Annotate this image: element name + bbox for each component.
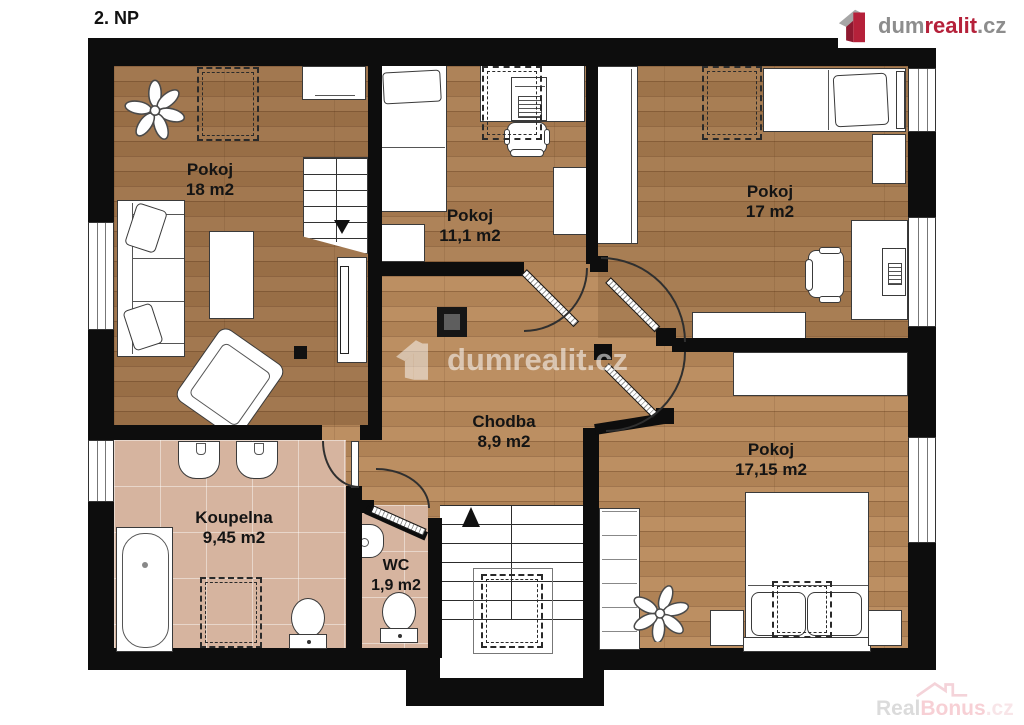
logo-text-dum: dum [878,13,924,38]
realbonus-roof-icon [914,680,970,698]
room-label-pokoj111: Pokoj 11,1 m2 [405,206,535,246]
shelf [733,352,908,396]
logo-text-realit: realit [924,13,977,38]
bathtub-drain [142,562,148,568]
room-name: Koupelna [169,508,299,528]
wall [672,338,908,352]
dumrealit-building-icon [838,6,874,46]
sink [236,441,278,479]
chair-back [510,149,544,157]
flush-button [307,640,311,644]
room-label-pokoj18: Pokoj 18 m2 [145,160,275,200]
window-pane-line [927,69,928,131]
nightstand [872,134,906,184]
window-pane-line [927,438,928,542]
realbonus-text-bonus: Bonus [920,697,985,720]
room-label-wc: WC 1,9 m2 [331,556,461,596]
floor-plan-page: Pokoj 18 m2 Pokoj 11,1 m2 Pokoj 17 m2 Ch… [0,0,1024,725]
blanket-line [828,70,829,130]
room-area: 17 m2 [705,202,835,222]
window-pane-line [105,223,106,329]
faucet [254,443,264,455]
sofa-seat-line [132,301,184,302]
toilet-tank [380,628,418,643]
headboard [743,637,871,652]
room-area: 11,1 m2 [405,226,535,246]
dumrealit-logo: dumrealit.cz [838,4,1018,48]
toilet [382,592,416,632]
wall [586,66,598,264]
wall [88,38,936,66]
headboard [896,71,905,129]
toilet-tank [289,634,327,649]
stairs-up-arrow-icon [462,507,480,527]
nightstand [868,610,902,646]
window [908,437,936,543]
realbonus-text-cz: .cz [986,697,1014,720]
sofa-seat-line [132,258,184,259]
bathtub-basin [122,533,169,648]
room-area: 8,9 m2 [439,432,569,452]
pillow [382,70,442,105]
chair-armrest [819,247,841,254]
logo-text: dumrealit.cz [878,13,1006,39]
room-name: Pokoj [405,206,535,226]
bed-single [377,64,447,212]
pillow [833,73,890,128]
wall [382,262,524,276]
stove-flue [294,346,307,359]
wall [583,428,599,678]
roof-window [482,66,542,140]
wall [88,425,322,440]
chimney-flue [444,314,460,330]
roof-window [197,67,259,141]
room-label-pokoj17: Pokoj 17 m2 [705,182,835,222]
wardrobe [594,66,638,244]
computer [882,248,906,296]
wall [368,66,382,425]
window [88,222,114,330]
room-label-pokoj1715: Pokoj 17,15 m2 [706,440,836,480]
nightstand [710,610,744,646]
room-name: Pokoj [706,440,836,460]
roof-window [481,574,543,648]
room-name: Pokoj [145,160,275,180]
roof-window [772,581,832,638]
room-name: WC [331,556,461,576]
plant-icon [122,78,188,140]
bed-single [763,68,906,132]
logo-text-cz: .cz [977,13,1006,38]
chimney [437,307,467,337]
wardrobe [302,66,366,100]
window-pane-line [97,441,98,501]
window-pane-line [97,223,98,329]
window [908,217,936,327]
desk-chair [808,250,844,298]
window [908,68,936,132]
toilet [291,598,325,638]
bathtub [116,527,173,652]
room-area: 18 m2 [145,180,275,200]
page-title: 2. NP [94,8,139,29]
window-pane-line [105,441,106,501]
room-name: Chodba [439,412,569,432]
realbonus-watermark: RealBonus.cz [876,680,1022,720]
room-area: 1,9 m2 [331,576,461,596]
room-area: 17,15 m2 [706,460,836,480]
chair-back [805,259,813,291]
chair-armrest [819,296,841,303]
roof-window [200,577,262,648]
tv [340,266,349,354]
window [88,440,114,502]
realbonus-text: RealBonus.cz [876,697,1014,720]
faucet [196,443,206,455]
sink [178,441,220,479]
wall [88,38,114,660]
stairs-down-arrow-icon [334,220,350,234]
coffee-table [209,231,254,319]
wardrobe-seam [631,69,632,243]
room-label-koupelna: Koupelna 9,45 m2 [169,508,299,548]
window-pane-line [918,438,919,542]
flush-button [398,634,402,638]
wall [360,425,382,440]
cabinet [553,167,590,235]
window-pane-line [918,218,919,326]
room-area: 9,45 m2 [169,528,299,548]
keyboard-hatch [888,263,902,285]
plant-icon [628,582,692,642]
chair-armrest [544,129,550,145]
window-pane-line [927,218,928,326]
shelf [692,312,806,339]
room-name: Pokoj [705,182,835,202]
blanket-line [379,147,445,148]
wardrobe-handle [315,95,355,96]
roof-window [702,66,762,140]
realbonus-text-real: Real [876,697,920,720]
room-label-chodba: Chodba 8,9 m2 [439,412,569,452]
window-pane-line [918,69,919,131]
